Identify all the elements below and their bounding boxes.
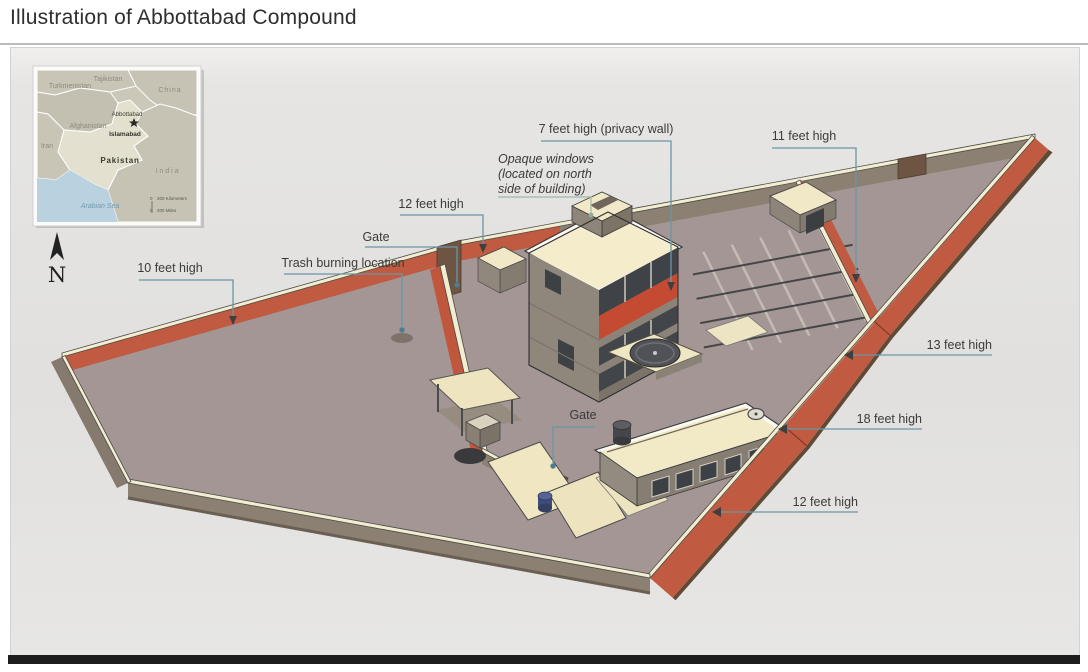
svg-text:Pakistan: Pakistan [100,156,139,165]
svg-text:12 feet high: 12 feet high [793,495,858,509]
compound-illustration: 7 feet high (privacy wall) Opaque window… [0,0,1088,672]
svg-text:Trash burning location: Trash burning location [281,256,404,270]
svg-text:7 feet high (privacy wall): 7 feet high (privacy wall) [539,122,674,136]
svg-text:Turkmenistan: Turkmenistan [49,83,91,90]
svg-text:Islamabad: Islamabad [109,131,141,138]
svg-text:200 Kilometers: 200 Kilometers [157,196,188,201]
figure: Illustration of Abbottabad Compound [0,0,1088,672]
svg-text:(located on north: (located on north [498,167,592,181]
compass-arrow-icon [50,232,64,260]
svg-text:Arabian Sea: Arabian Sea [80,203,120,210]
svg-text:200 Miles: 200 Miles [157,208,177,213]
svg-text:Iran: Iran [41,143,53,150]
roof-tank [613,421,631,446]
svg-text:10 feet high: 10 feet high [137,261,202,275]
dark-basin [454,448,486,464]
svg-text:Opaque windows: Opaque windows [498,152,594,166]
svg-text:Gate: Gate [362,230,389,244]
north-arrow: N [48,232,66,287]
svg-text:Tajikistan: Tajikistan [94,76,123,83]
svg-text:13 feet high: 13 feet high [927,338,992,352]
blue-barrel [538,492,552,513]
svg-text:China: China [158,87,181,94]
svg-text:side of building): side of building) [498,182,586,196]
svg-text:11 feet high: 11 feet high [772,129,836,143]
svg-text:N: N [48,263,66,287]
svg-text:12 feet high: 12 feet high [398,197,463,211]
satellite-dish [748,409,764,420]
inset-map: Turkmenistan Tajikistan China Afghanista… [33,66,204,228]
trash-burning-spot [391,333,413,343]
svg-text:Gate: Gate [569,408,596,422]
svg-text:India: India [155,168,180,175]
svg-text:Abbottabad: Abbottabad [112,112,143,118]
svg-text:Afghanistan: Afghanistan [70,123,107,130]
svg-text:18 feet high: 18 feet high [857,412,922,426]
